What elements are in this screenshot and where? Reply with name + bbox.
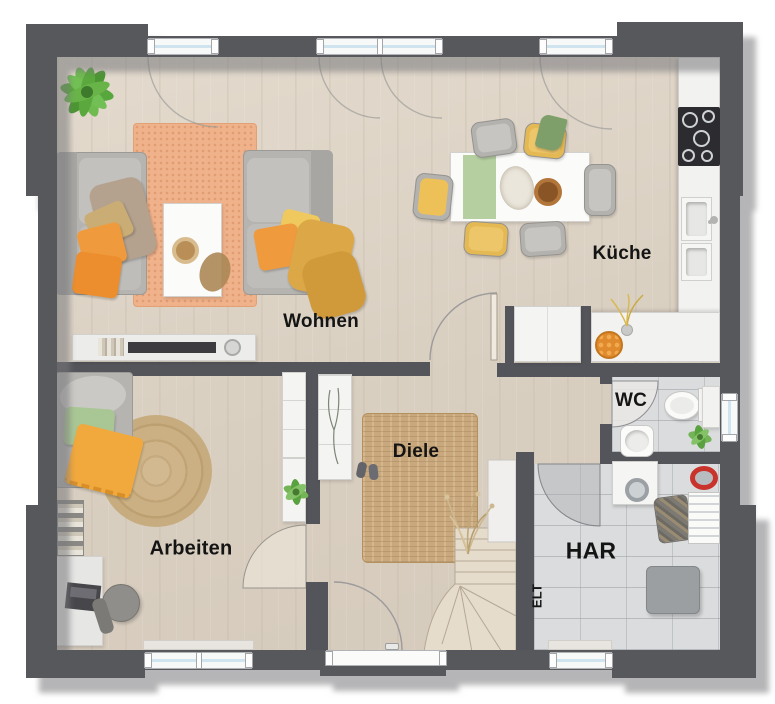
vase-sprigs xyxy=(611,294,643,326)
room-label-har: HAR xyxy=(566,538,616,565)
dried-grass-plant xyxy=(445,492,495,555)
room-label-wc: WC xyxy=(615,390,647,412)
room-label-wohnen: Wohnen xyxy=(283,311,359,333)
wc-plant xyxy=(687,424,713,449)
room-label-arbeiten: Arbeiten xyxy=(150,538,233,561)
room-label-elt: ELT xyxy=(530,584,545,608)
floor-plan: Wohnen Küche Arbeiten Diele WC HAR ELT xyxy=(0,0,775,704)
plants-overlay xyxy=(0,0,775,704)
room-label-diele: Diele xyxy=(393,441,439,463)
room-label-kueche: Küche xyxy=(592,243,651,265)
palm-plant xyxy=(59,65,115,119)
office-plant xyxy=(282,479,310,506)
wardrobe-branch-decor xyxy=(329,388,339,464)
